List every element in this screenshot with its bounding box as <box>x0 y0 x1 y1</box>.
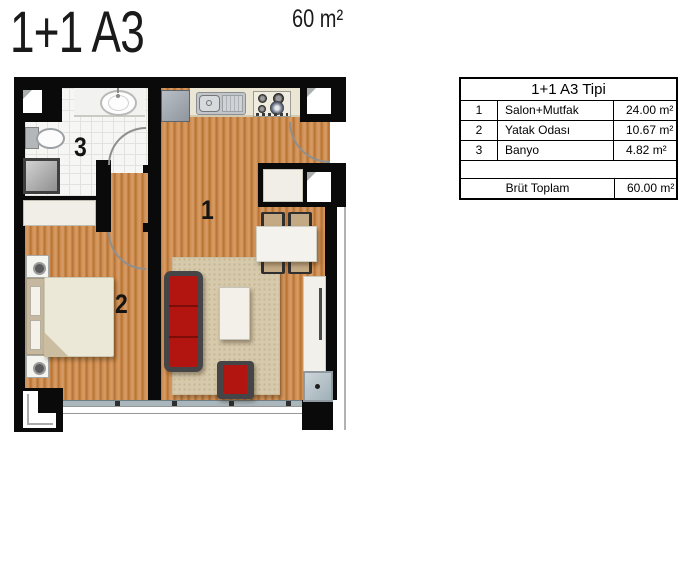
room-area-cell: 10.67 m² <box>614 121 676 140</box>
table-empty-row <box>461 161 676 179</box>
kitchen-drainer <box>222 95 243 112</box>
table-row: 3 Banyo 4.82 m² <box>461 141 676 161</box>
chair-seat <box>264 214 282 226</box>
room-number-cell: 2 <box>461 121 498 140</box>
window-corner-mark-icon <box>307 88 316 97</box>
sofa-cushions <box>169 276 198 367</box>
blanket-fold <box>44 332 69 357</box>
combi-dot-icon <box>315 384 320 389</box>
window-top-right <box>307 88 331 114</box>
room-area-cell: 4.82 m² <box>614 141 676 160</box>
room-number-cell: 3 <box>461 141 498 160</box>
window-entry <box>307 172 331 202</box>
total-label-cell: Brüt Toplam <box>461 179 615 198</box>
pillow <box>30 320 41 350</box>
room-label-bathroom: 3 <box>74 134 87 161</box>
window-bottom-left-frame <box>27 394 53 425</box>
wall-top <box>14 77 346 88</box>
bedroom-door-jamb <box>143 223 161 232</box>
fridge <box>161 90 190 122</box>
window-corner-mark-icon <box>307 172 316 181</box>
toilet-bowl <box>36 128 65 149</box>
room-name-cell: Yatak Odası <box>498 121 614 140</box>
room-label-bedroom: 2 <box>115 291 128 318</box>
room-area-cell: 24.00 m² <box>614 101 676 120</box>
room-label-salon: 1 <box>201 197 214 224</box>
table-total-row: Brüt Toplam 60.00 m² <box>461 179 676 198</box>
coffee-table <box>219 287 250 340</box>
lamp-icon <box>33 362 46 375</box>
shower-tray <box>23 158 60 194</box>
nightstand <box>26 355 49 378</box>
room-name-cell: Banyo <box>498 141 614 160</box>
floor-plan-page: 1+1 A3 60 m² <box>0 0 700 570</box>
bathroom-tap-dot-icon <box>116 94 120 98</box>
stove-knobs <box>256 113 288 116</box>
window-top-left <box>23 90 42 113</box>
balcony-rail-line <box>344 207 346 430</box>
kitchen-sink-drain-icon <box>206 100 212 106</box>
balcony-sill-strip <box>63 406 302 414</box>
spec-table: 1+1 A3 Tipi 1 Salon+Mutfak 24.00 m² 2 Ya… <box>459 77 678 200</box>
table-row: 2 Yatak Odası 10.67 m² <box>461 121 676 141</box>
stove-burner <box>258 94 267 103</box>
entry-cabinet <box>263 169 303 202</box>
wall-left <box>14 77 25 432</box>
wardrobe <box>23 200 96 226</box>
chair-seat <box>291 214 309 226</box>
hall-wall-left <box>96 160 111 232</box>
bath-door-jamb <box>143 165 161 173</box>
armchair-seat <box>223 365 247 394</box>
wall-divider-living <box>148 88 161 400</box>
spec-table-title: 1+1 A3 Tipi <box>461 79 676 101</box>
floor-plan: 1 2 3 <box>0 0 460 450</box>
total-area-cell: 60.00 m² <box>615 179 676 198</box>
room-name-cell: Salon+Mutfak <box>498 101 614 120</box>
table-row: 1 Salon+Mutfak 24.00 m² <box>461 101 676 121</box>
nightstand <box>26 255 49 278</box>
room-number-cell: 1 <box>461 101 498 120</box>
dining-table <box>256 226 317 262</box>
corner-block-bottom-right <box>302 400 333 430</box>
stove-burner <box>258 105 266 113</box>
pillow <box>30 286 41 316</box>
tv-icon <box>319 288 322 340</box>
bathroom-tap-icon <box>117 88 119 93</box>
window-corner-mark-icon <box>23 90 32 99</box>
lamp-icon <box>33 262 46 275</box>
